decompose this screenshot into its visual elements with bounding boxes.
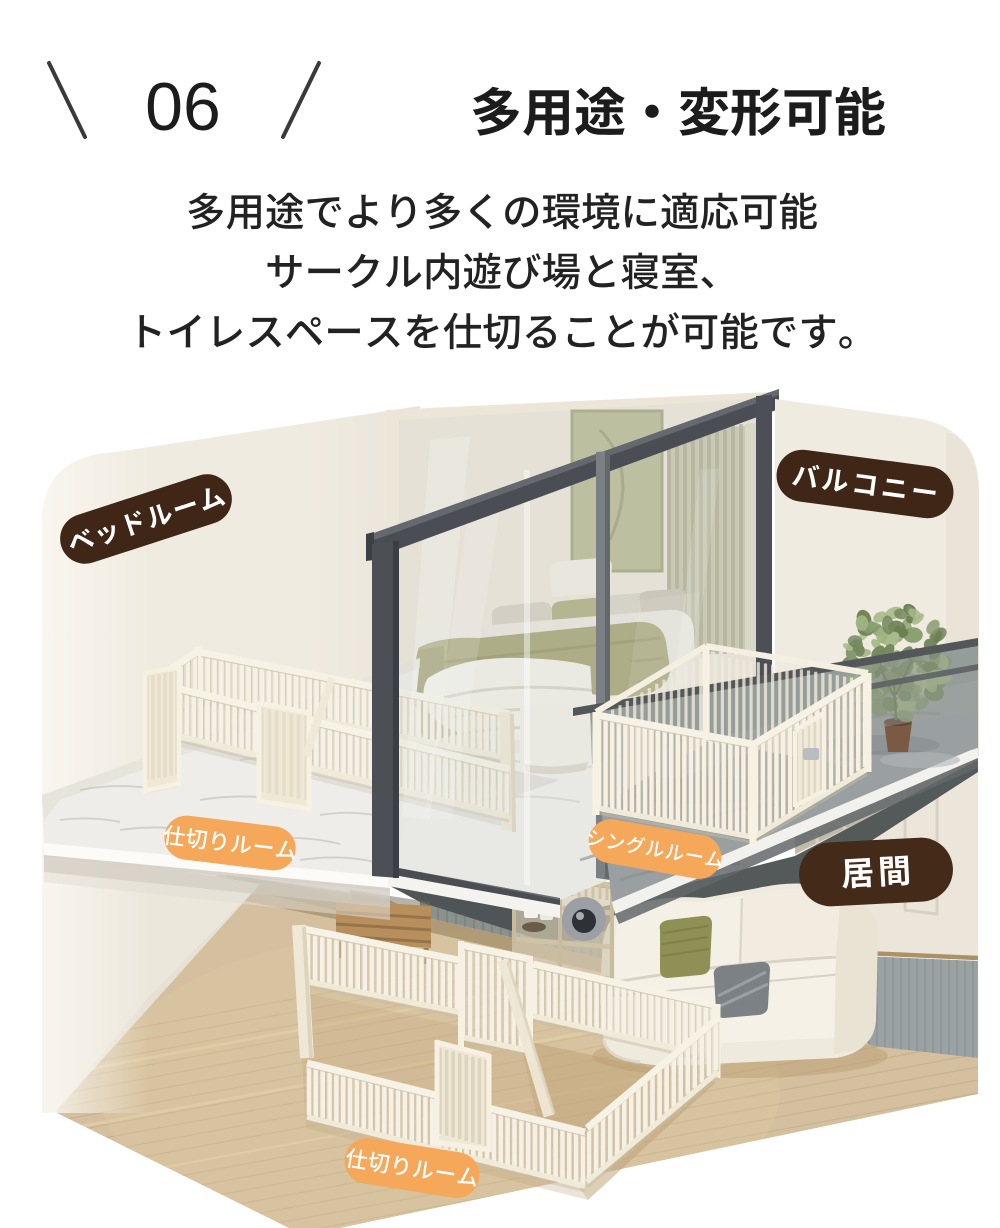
svg-text:06: 06: [145, 69, 221, 145]
